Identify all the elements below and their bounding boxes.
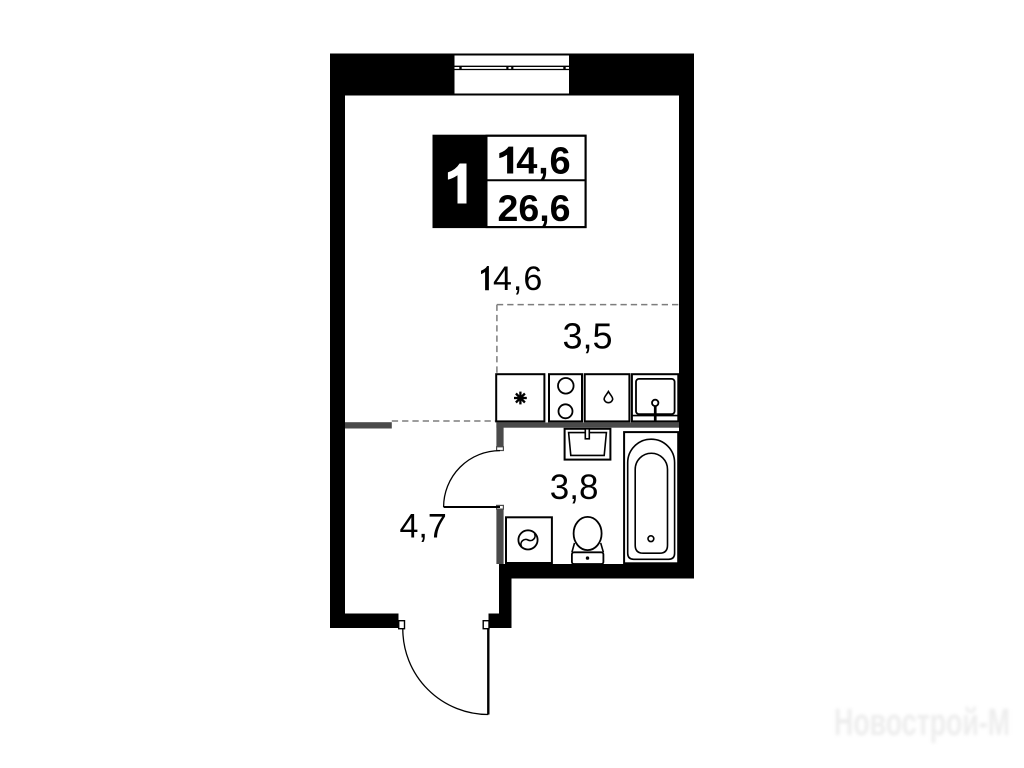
svg-text:4,7: 4,7 — [400, 508, 447, 546]
svg-text:4,6: 4,6 — [516, 141, 571, 183]
svg-text:3,5: 3,5 — [563, 316, 613, 357]
svg-text:Новострой-М: Новострой-М — [834, 702, 1010, 744]
svg-text:3,8: 3,8 — [550, 468, 599, 507]
svg-text:26,6: 26,6 — [498, 187, 571, 229]
svg-text:4,6: 4,6 — [493, 260, 543, 298]
